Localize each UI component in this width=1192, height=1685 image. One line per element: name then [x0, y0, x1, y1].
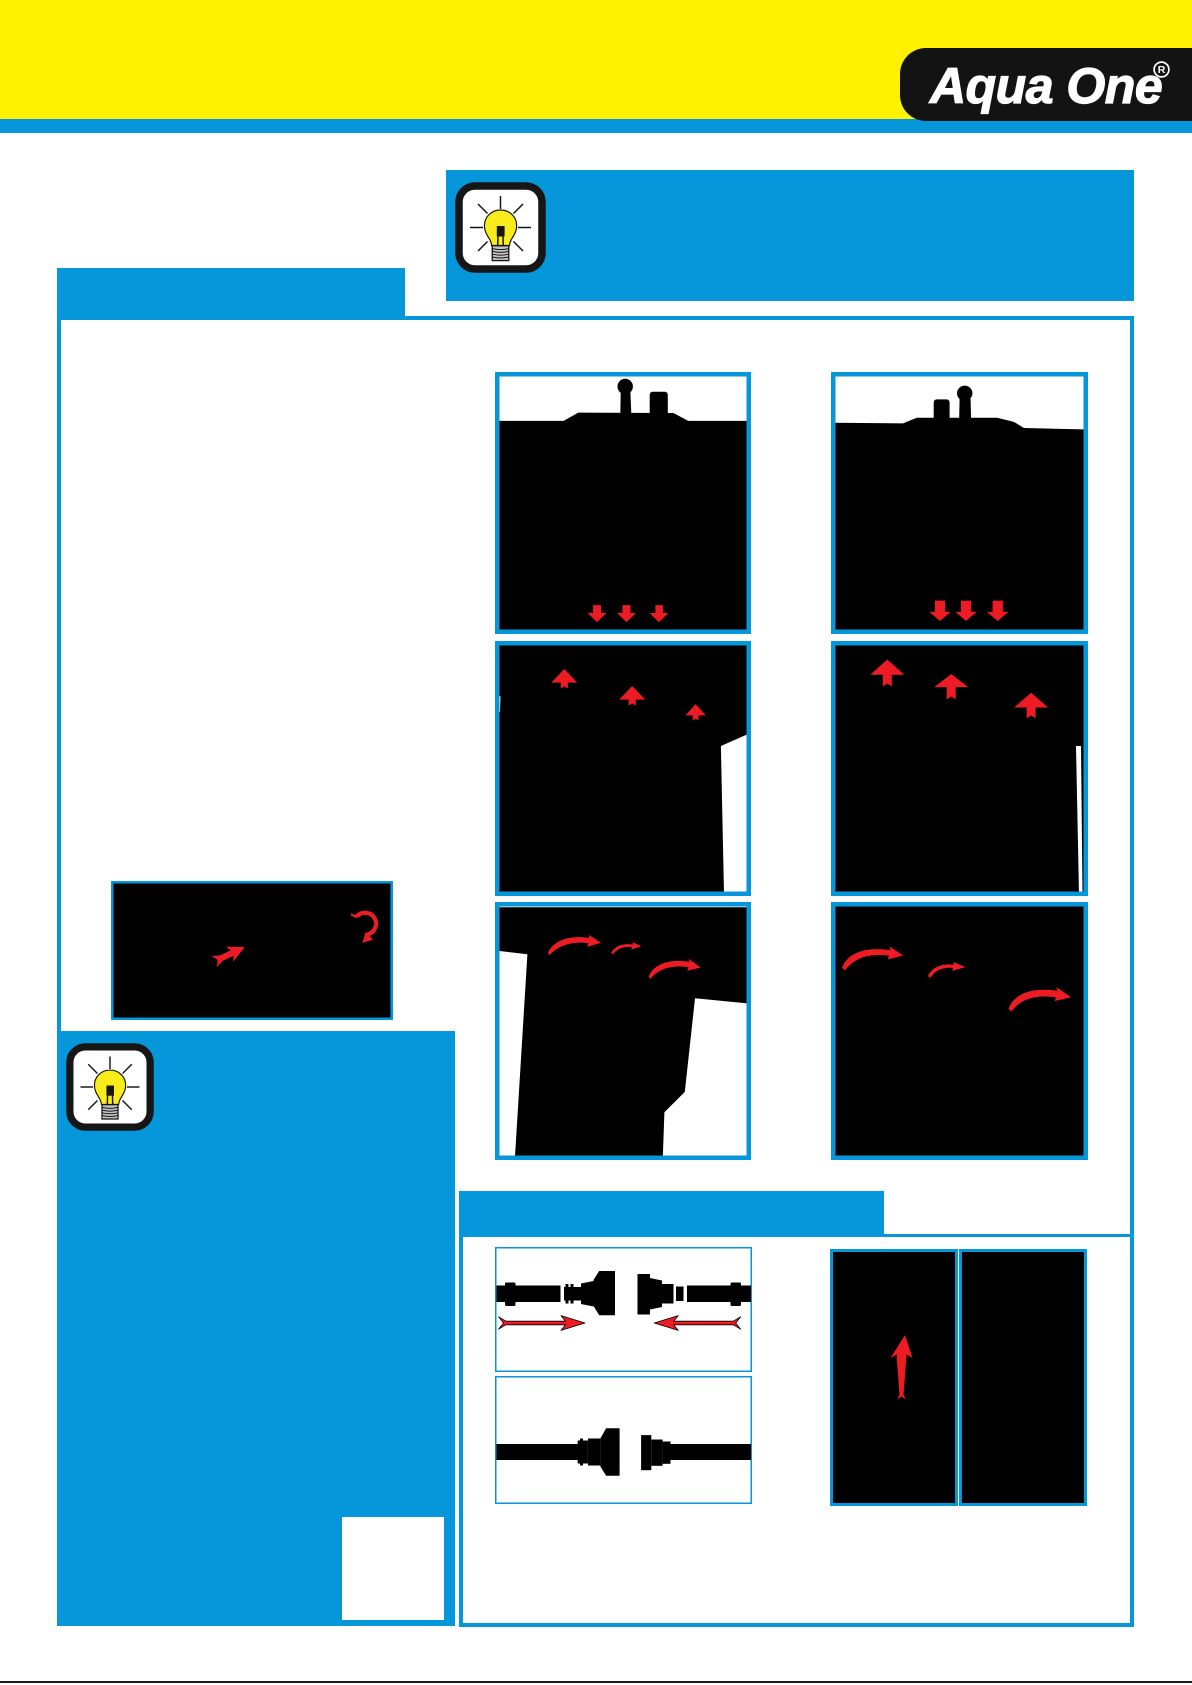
svg-text:R: R [1158, 64, 1166, 76]
